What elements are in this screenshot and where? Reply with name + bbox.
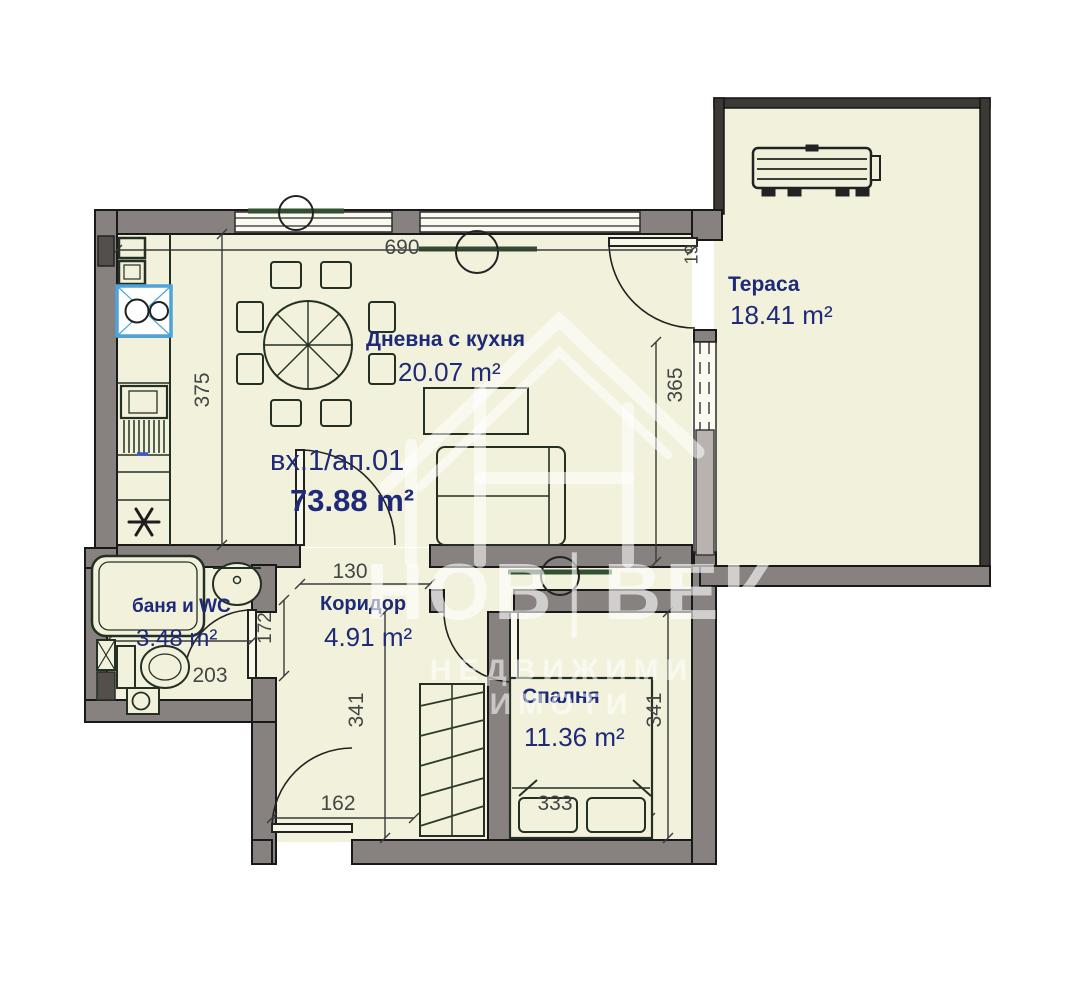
window-top-right (420, 212, 640, 232)
dimension-162: 162 (310, 792, 366, 816)
glass-jamb-top (694, 330, 716, 342)
bed-pillow (587, 798, 645, 832)
washbasin-drain (234, 577, 241, 584)
bottom-wall-right (352, 840, 692, 864)
sink-bowl (126, 300, 149, 323)
bath-name: баня и WC (132, 597, 231, 617)
chair-icon (369, 354, 395, 384)
dimension-172: 172 (255, 598, 277, 658)
dimension-341-left: 341 (345, 680, 369, 740)
dimension-19: 19 (682, 240, 703, 270)
dimension-365: 365 (664, 355, 688, 415)
terrace-right-wall (980, 98, 990, 586)
corridor-name: Коридор (320, 594, 406, 615)
shaft-box (98, 236, 114, 266)
bath-area: 3.48 m² (136, 626, 217, 651)
floor-plan-svg (0, 0, 1081, 1000)
chair-icon (237, 302, 263, 332)
bedroom-area: 11.36 m² (524, 724, 625, 751)
right-corner-wall (692, 210, 722, 240)
bedroom-top-wall-b (514, 590, 692, 612)
terrace-top-wall (714, 98, 990, 108)
toilet-tank (117, 646, 135, 688)
living-room-area: 20.07 m² (398, 359, 501, 386)
corridor-area: 4.91 m² (324, 624, 412, 651)
floor-plan: Дневна с кухня 20.07 m² Тераса 18.41 m² … (0, 0, 1081, 1000)
sink-bowl (150, 302, 168, 320)
chair-icon (271, 400, 301, 426)
chair-icon (237, 354, 263, 384)
apartment-label: вх.1/ап.01 (270, 446, 404, 476)
terrace-left-wall (714, 98, 724, 214)
living-room-name: Дневна с кухня (366, 329, 525, 351)
washing-machine-door (133, 693, 150, 710)
entrance-door-leaf (272, 824, 352, 832)
bath-right-wall-b (252, 678, 276, 722)
plumbing-shaft (97, 672, 115, 700)
terrace-bottom-wall (700, 566, 990, 586)
terrace-area: 18.41 m² (730, 302, 833, 329)
apartment-area: 73.88 m² (290, 485, 414, 518)
dimension-375: 375 (191, 360, 215, 420)
dimension-203: 203 (180, 664, 240, 688)
right-wall-lower (692, 566, 716, 864)
bedroom-left-wall (488, 612, 510, 840)
dimension-333: 333 (527, 792, 583, 816)
bedroom-door-leaf (510, 612, 518, 682)
ac-unit-icon (753, 145, 880, 196)
bottom-wall-left (252, 840, 272, 864)
dimension-690: 690 (372, 236, 432, 260)
bath-bottom-wall (85, 700, 259, 722)
chair-icon (321, 400, 351, 426)
dimension-341-right: 341 (643, 680, 667, 740)
terrace-name: Тераса (728, 274, 800, 296)
dimension-130: 130 (320, 560, 380, 584)
bedroom-name: Спалня (522, 686, 600, 708)
chair-icon (321, 262, 351, 288)
chair-icon (271, 262, 301, 288)
bedroom-top-wall-a (430, 590, 444, 612)
living-bottom-wall-right (430, 545, 692, 567)
